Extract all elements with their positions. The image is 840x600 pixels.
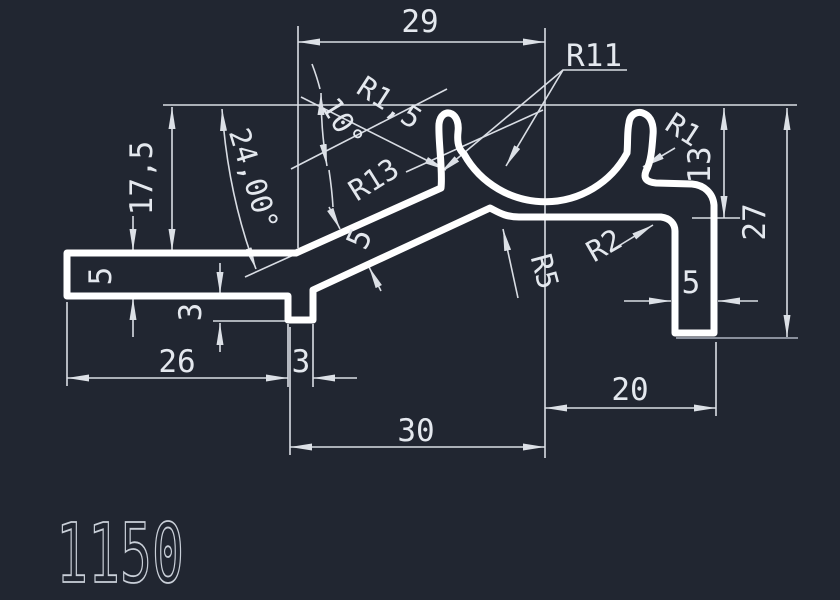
- radius-label-r11: R11: [566, 38, 622, 74]
- dim-label-3-depth: 3: [173, 303, 209, 322]
- dim-label-20: 20: [611, 372, 648, 408]
- dim-label-17-5: 17,5: [124, 141, 160, 216]
- dim-label-5-leg: 5: [682, 265, 701, 301]
- dim-label-29: 29: [401, 4, 438, 40]
- part-number-label: 1150: [56, 507, 184, 600]
- dim-label-30: 30: [397, 413, 434, 449]
- cad-canvas[interactable]: 29 30 20 26 3 5 17,5 3 5 5 13 27 24,00° …: [0, 0, 840, 600]
- dim-label-26: 26: [158, 344, 195, 380]
- dim-label-27: 27: [737, 203, 773, 240]
- dim-label-3-width: 3: [292, 344, 311, 380]
- dim-label-5-bar: 5: [83, 267, 119, 286]
